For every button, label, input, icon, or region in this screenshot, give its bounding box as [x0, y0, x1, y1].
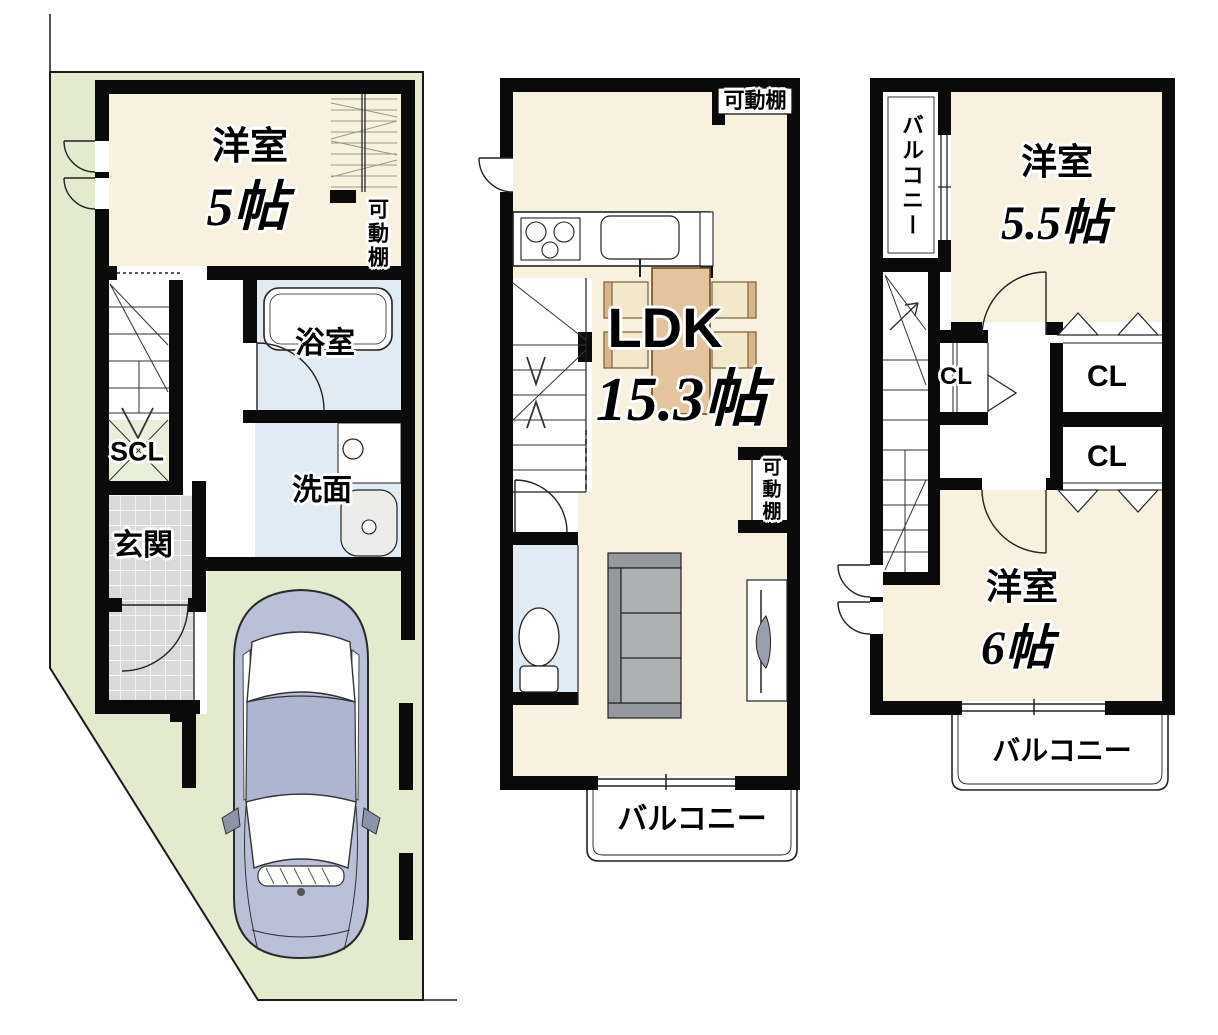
- floorplan-page: 洋室 5帖 可動棚 浴室 洗面 SCL 玄関 可動棚 LDK 15.3帖 可動棚…: [0, 0, 1218, 1035]
- washroom-label: 洗面: [292, 476, 352, 506]
- shoe-closet-label: SCL: [110, 439, 164, 466]
- sofa: [608, 553, 681, 718]
- ldk-size: 15.3帖: [596, 369, 767, 431]
- bedroom-6-label: 洋室: [986, 569, 1058, 605]
- kitchen-sink: [601, 216, 679, 259]
- movable-shelf-label-2f-top: 可動棚: [724, 91, 787, 112]
- balcony-label-3f-bottom: バルコニー: [992, 737, 1131, 765]
- bedroom-5-5-size: 5.5帖: [1001, 200, 1109, 248]
- entrance-label: 玄関: [113, 531, 173, 561]
- car-roof: [246, 696, 356, 802]
- bedroom-5-5-label: 洋室: [1021, 144, 1093, 180]
- bathroom-label: 浴室: [295, 329, 355, 359]
- bedroom-5-label: 洋室: [212, 128, 288, 166]
- bedroom-6-size: 6帖: [981, 625, 1053, 673]
- entrance-tile-floor: [109, 495, 193, 700]
- bedroom-5-size: 5帖: [207, 180, 288, 234]
- balcony-label-2f: バルコニー: [617, 805, 766, 835]
- bedroom-6-windows: [838, 565, 870, 634]
- car-windshield: [246, 794, 356, 868]
- closet-label-2: CL: [1087, 362, 1127, 392]
- washer-outlet-icon: [343, 439, 363, 459]
- third-floor-plan: [838, 78, 1175, 790]
- closet-label-1: CL: [940, 365, 972, 389]
- tv-board: [747, 580, 787, 701]
- car-rear-window: [247, 632, 355, 702]
- closet-label-3: CL: [1087, 442, 1127, 472]
- ldk-label: LDK: [607, 300, 722, 356]
- car-illustration: [222, 590, 380, 958]
- balcony-label-3f-side: バルコニー: [900, 114, 922, 239]
- movable-shelf-label-2f-side: 可動棚: [761, 457, 780, 523]
- second-floor-plan: [479, 78, 800, 861]
- movable-shelf-label-1f: 可動棚: [367, 198, 388, 270]
